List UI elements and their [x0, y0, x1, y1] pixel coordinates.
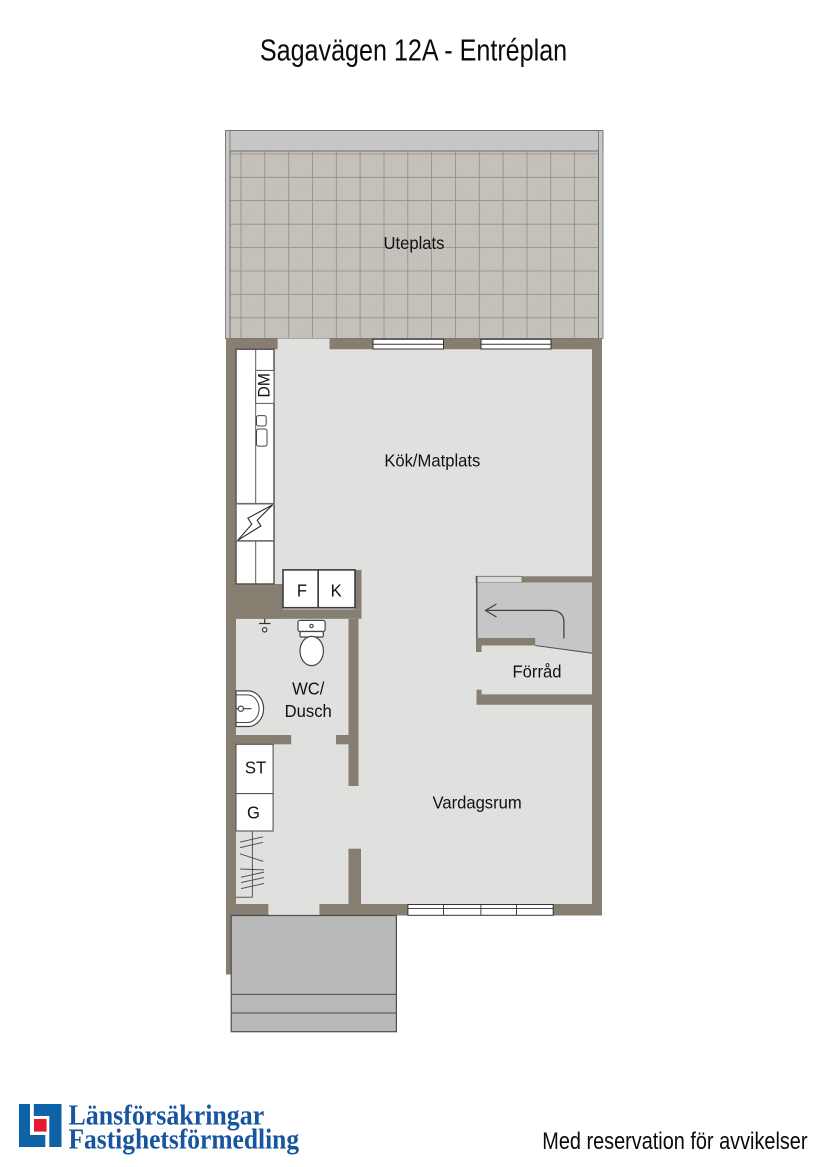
svg-text:K: K: [331, 581, 343, 600]
svg-text:Uteplats: Uteplats: [384, 233, 445, 252]
svg-text:F: F: [297, 581, 307, 600]
svg-text:Vardagsrum: Vardagsrum: [432, 793, 521, 812]
svg-text:WC/: WC/: [292, 679, 325, 698]
svg-text:Fastighetsförmedling: Fastighetsförmedling: [69, 1123, 300, 1154]
svg-text:ST: ST: [245, 758, 267, 777]
svg-text:Sagavägen 12A - Entréplan: Sagavägen 12A - Entréplan: [260, 33, 567, 67]
svg-text:G: G: [247, 803, 260, 822]
svg-text:Förråd: Förråd: [513, 662, 562, 681]
svg-text:Kök/Matplats: Kök/Matplats: [384, 451, 480, 470]
svg-text:Med reservation för avvikelser: Med reservation för avvikelser: [542, 1127, 807, 1154]
svg-text:Dusch: Dusch: [285, 702, 332, 721]
svg-text:DM: DM: [255, 373, 274, 397]
